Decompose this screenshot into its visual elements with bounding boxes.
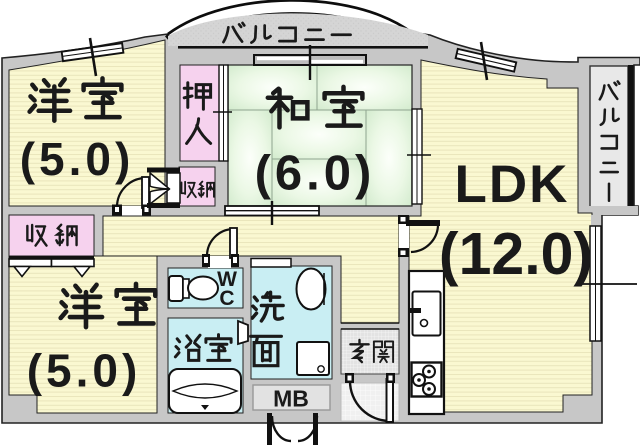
svg-text:(6.0): (6.0) [255,147,376,201]
svg-text:(5.0): (5.0) [20,133,135,185]
svg-text:(12.0): (12.0) [439,221,593,287]
svg-text:C: C [219,287,234,310]
svg-text:(5.0): (5.0) [27,345,142,397]
svg-text:MB: MB [273,386,309,412]
svg-text:LDK: LDK [455,155,570,214]
